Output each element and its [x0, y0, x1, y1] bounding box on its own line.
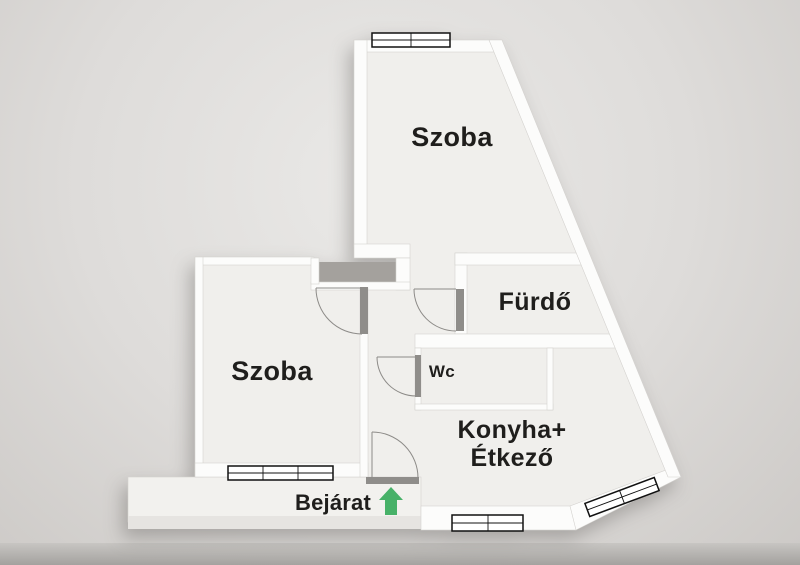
- jamb-szoba-left-door: [360, 287, 368, 334]
- wall-szoba-top-left: [354, 40, 367, 247]
- wall-szoba-top-bottom: [354, 244, 410, 258]
- backdrop: Szoba Szoba Fürdő Wc Konyha+ Étkező Bejá…: [0, 0, 800, 565]
- shaft-void: [317, 262, 397, 284]
- room-label-konyha-line2: Étkező: [471, 443, 554, 472]
- room-label-szoba-left: Szoba: [231, 356, 313, 386]
- wall-szoba-left-left: [195, 257, 203, 477]
- room-label-furdo: Fürdő: [499, 288, 572, 316]
- room-label-szoba-top: Szoba: [411, 122, 493, 152]
- apartment-plan: Szoba Szoba Fürdő Wc Konyha+ Étkező Bejá…: [128, 33, 681, 531]
- entrance-platform-edge: [128, 516, 421, 529]
- floor-plan-canvas: Szoba Szoba Fürdő Wc Konyha+ Étkező Bejá…: [0, 0, 800, 565]
- wall-wc-bottom: [415, 404, 553, 410]
- wall-furdo-top: [455, 253, 585, 265]
- jamb-entrance-threshold: [366, 477, 419, 484]
- window-icon-konyha-bottom: [452, 515, 523, 531]
- window-icon-szoba-top: [372, 33, 450, 47]
- wall-wc-right: [547, 348, 553, 410]
- jamb-wc-door: [415, 355, 421, 397]
- wall-furdo-bottom: [415, 334, 620, 348]
- entrance-arrow-shaft: [385, 500, 397, 515]
- wall-step: [311, 258, 319, 284]
- entrance-label: Bejárat: [295, 490, 371, 515]
- room-label-wc: Wc: [429, 362, 455, 381]
- wall-szoba-left-top: [195, 257, 314, 265]
- jamb-furdo-door: [456, 289, 464, 331]
- window-icon-szoba-left: [228, 466, 333, 480]
- room-label-konyha-line1: Konyha+: [457, 416, 566, 444]
